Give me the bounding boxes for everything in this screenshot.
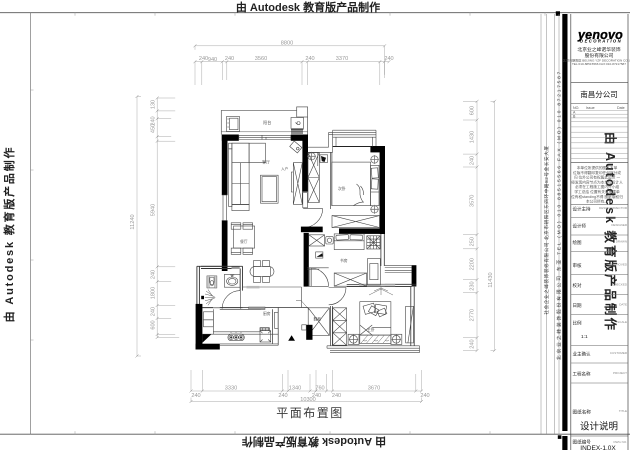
svg-text:次卧: 次卧 — [338, 186, 346, 191]
svg-text:3570: 3570 — [470, 195, 476, 207]
svg-text:8800: 8800 — [281, 40, 293, 46]
svg-text:本公司所有。: 本公司所有。 — [586, 199, 608, 204]
svg-text:1:1: 1:1 — [581, 334, 588, 340]
svg-text:鞋柜: 鞋柜 — [314, 317, 322, 322]
svg-text:设计说明: 设计说明 — [580, 421, 618, 433]
svg-text:厨房: 厨房 — [263, 311, 271, 316]
svg-text:必须在工程施工图内外小组: 必须在工程施工图内外小组 — [575, 184, 620, 189]
svg-text:由 Autodesk 教育版产品制作: 由 Autodesk 教育版产品制作 — [2, 146, 16, 323]
svg-text:11240: 11240 — [130, 214, 136, 229]
svg-text:日期: 日期 — [573, 303, 582, 309]
svg-text:北京业之峰装饰股份有限公司 东亚 TEL (MO) 01: 北京业之峰装饰股份有限公司 东亚 TEL (MO) 010 88515566 F… — [555, 70, 562, 360]
svg-text:APPROVED: APPROVED — [610, 263, 628, 267]
svg-text:经发现内容节点为本单位设计人: 经发现内容节点为本单位设计人 — [571, 179, 623, 184]
svg-text:CHECKED: CHECKED — [612, 283, 628, 287]
svg-text:工程名称: 工程名称 — [573, 371, 591, 378]
svg-text:940: 940 — [208, 57, 217, 63]
svg-text:餐厅: 餐厅 — [240, 239, 248, 244]
svg-text:校对: 校对 — [573, 282, 582, 289]
svg-text:240: 240 — [191, 393, 200, 399]
svg-text:业主确认: 业主确认 — [573, 351, 591, 358]
svg-text:平面布置图: 平面布置图 — [276, 406, 344, 420]
svg-text:600: 600 — [151, 320, 157, 329]
svg-text:绘图: 绘图 — [573, 239, 582, 246]
svg-text:本单位所提供的图工本单: 本单位所提供的图工本单 — [577, 165, 618, 170]
svg-text:PROJECT: PROJECT — [613, 371, 627, 375]
svg-text:DESIGN DIRECTOR: DESIGN DIRECTOR — [599, 206, 628, 210]
svg-text:南昌分公司: 南昌分公司 — [580, 89, 618, 99]
svg-text:230: 230 — [470, 281, 476, 290]
svg-text:审核: 审核 — [573, 262, 582, 269]
svg-text:DECORATION: DECORATION — [580, 39, 622, 44]
svg-text:INDEX-1.0X: INDEX-1.0X — [580, 445, 616, 450]
svg-text:CUSTOMER: CUSTOMER — [610, 351, 628, 355]
svg-text:位有权standing不得 图纸版权归: 位有权standing不得 图纸版权归 — [571, 194, 623, 199]
svg-text:归 位外公司有权属此追责 一: 归 位外公司有权属此追责 一 — [574, 175, 621, 180]
svg-text:5940: 5940 — [151, 204, 157, 216]
svg-text:TITLE: TITLE — [619, 409, 627, 413]
svg-text:位版不得翻印复印任何部分或: 位版不得翻印复印任何部分或 — [573, 170, 621, 175]
svg-text:由 Autodesk 教育版产品制作: 由 Autodesk 教育版产品制作 — [236, 0, 380, 14]
svg-text:240: 240 — [332, 393, 341, 399]
svg-text:450: 450 — [151, 124, 157, 133]
svg-text:240: 240 — [384, 56, 393, 62]
svg-text:240: 240 — [225, 56, 234, 62]
svg-text:10300: 10300 — [300, 397, 316, 403]
svg-text:11430: 11430 — [488, 272, 494, 287]
svg-text:设计主持: 设计主持 — [573, 206, 591, 213]
svg-text:240: 240 — [199, 56, 208, 62]
svg-text:比例: 比例 — [573, 320, 582, 327]
svg-text:TEL:010-88515566 FAX:010-87217: TEL:010-88515566 FAX:010-87217587 — [572, 62, 626, 66]
svg-text:250: 250 — [470, 237, 476, 246]
svg-text:社会企业之峰装饰装修有限公司 北京市朝阳区东四环中路82号金: 社会企业之峰装饰装修有限公司 北京市朝阳区东四环中路82号金长安大厦 — [543, 145, 550, 314]
svg-text:Date: Date — [617, 106, 625, 110]
svg-text:DRAWN: DRAWN — [616, 240, 627, 244]
svg-text:DATE: DATE — [619, 303, 627, 307]
svg-text:北京业之峰诺华装饰: 北京业之峰诺华装饰 — [577, 46, 620, 53]
svg-text:学工总结 位置有关系承建单: 学工总结 位置有关系承建单 — [574, 189, 620, 194]
svg-text:书房: 书房 — [340, 258, 348, 263]
svg-text:760: 760 — [315, 385, 324, 391]
svg-text:3370: 3370 — [336, 56, 348, 62]
svg-text:2770: 2770 — [470, 309, 476, 321]
svg-text:130: 130 — [151, 100, 157, 109]
svg-text:主卧: 主卧 — [367, 327, 375, 332]
svg-text:由 Autodesk 教育版产品制作: 由 Autodesk 教育版产品制作 — [603, 132, 618, 332]
svg-text:240: 240 — [151, 270, 157, 279]
svg-text:入户: 入户 — [281, 166, 289, 171]
svg-text:客厅: 客厅 — [262, 159, 270, 165]
svg-text:240: 240 — [151, 307, 157, 316]
svg-text:3560: 3560 — [255, 56, 267, 62]
svg-text:2200: 2200 — [470, 258, 476, 270]
svg-text:由 Autodesk 教育版产品制作: 由 Autodesk 教育版产品制作 — [242, 435, 386, 449]
svg-text:SCALE: SCALE — [617, 320, 627, 324]
svg-text:1800: 1800 — [151, 287, 157, 299]
svg-text:NO.: NO. — [573, 106, 579, 110]
svg-text:240: 240 — [305, 56, 314, 62]
svg-text:240: 240 — [470, 339, 476, 348]
svg-text:图纸名称: 图纸名称 — [573, 409, 592, 416]
svg-text:1340: 1340 — [289, 385, 301, 391]
svg-text:600: 600 — [470, 106, 476, 115]
svg-text:3330: 3330 — [225, 385, 237, 391]
svg-text:3670: 3670 — [368, 385, 380, 391]
svg-text:设计师: 设计师 — [573, 223, 587, 230]
svg-text:240: 240 — [470, 156, 476, 165]
svg-text:阳台: 阳台 — [263, 119, 271, 126]
svg-text:DESIGNER: DESIGNER — [611, 223, 628, 227]
svg-text:DWG NO.: DWG NO. — [614, 440, 628, 444]
svg-text:1430: 1430 — [470, 131, 476, 143]
svg-text:240: 240 — [278, 393, 287, 399]
svg-text:Issue: Issue — [586, 106, 595, 110]
